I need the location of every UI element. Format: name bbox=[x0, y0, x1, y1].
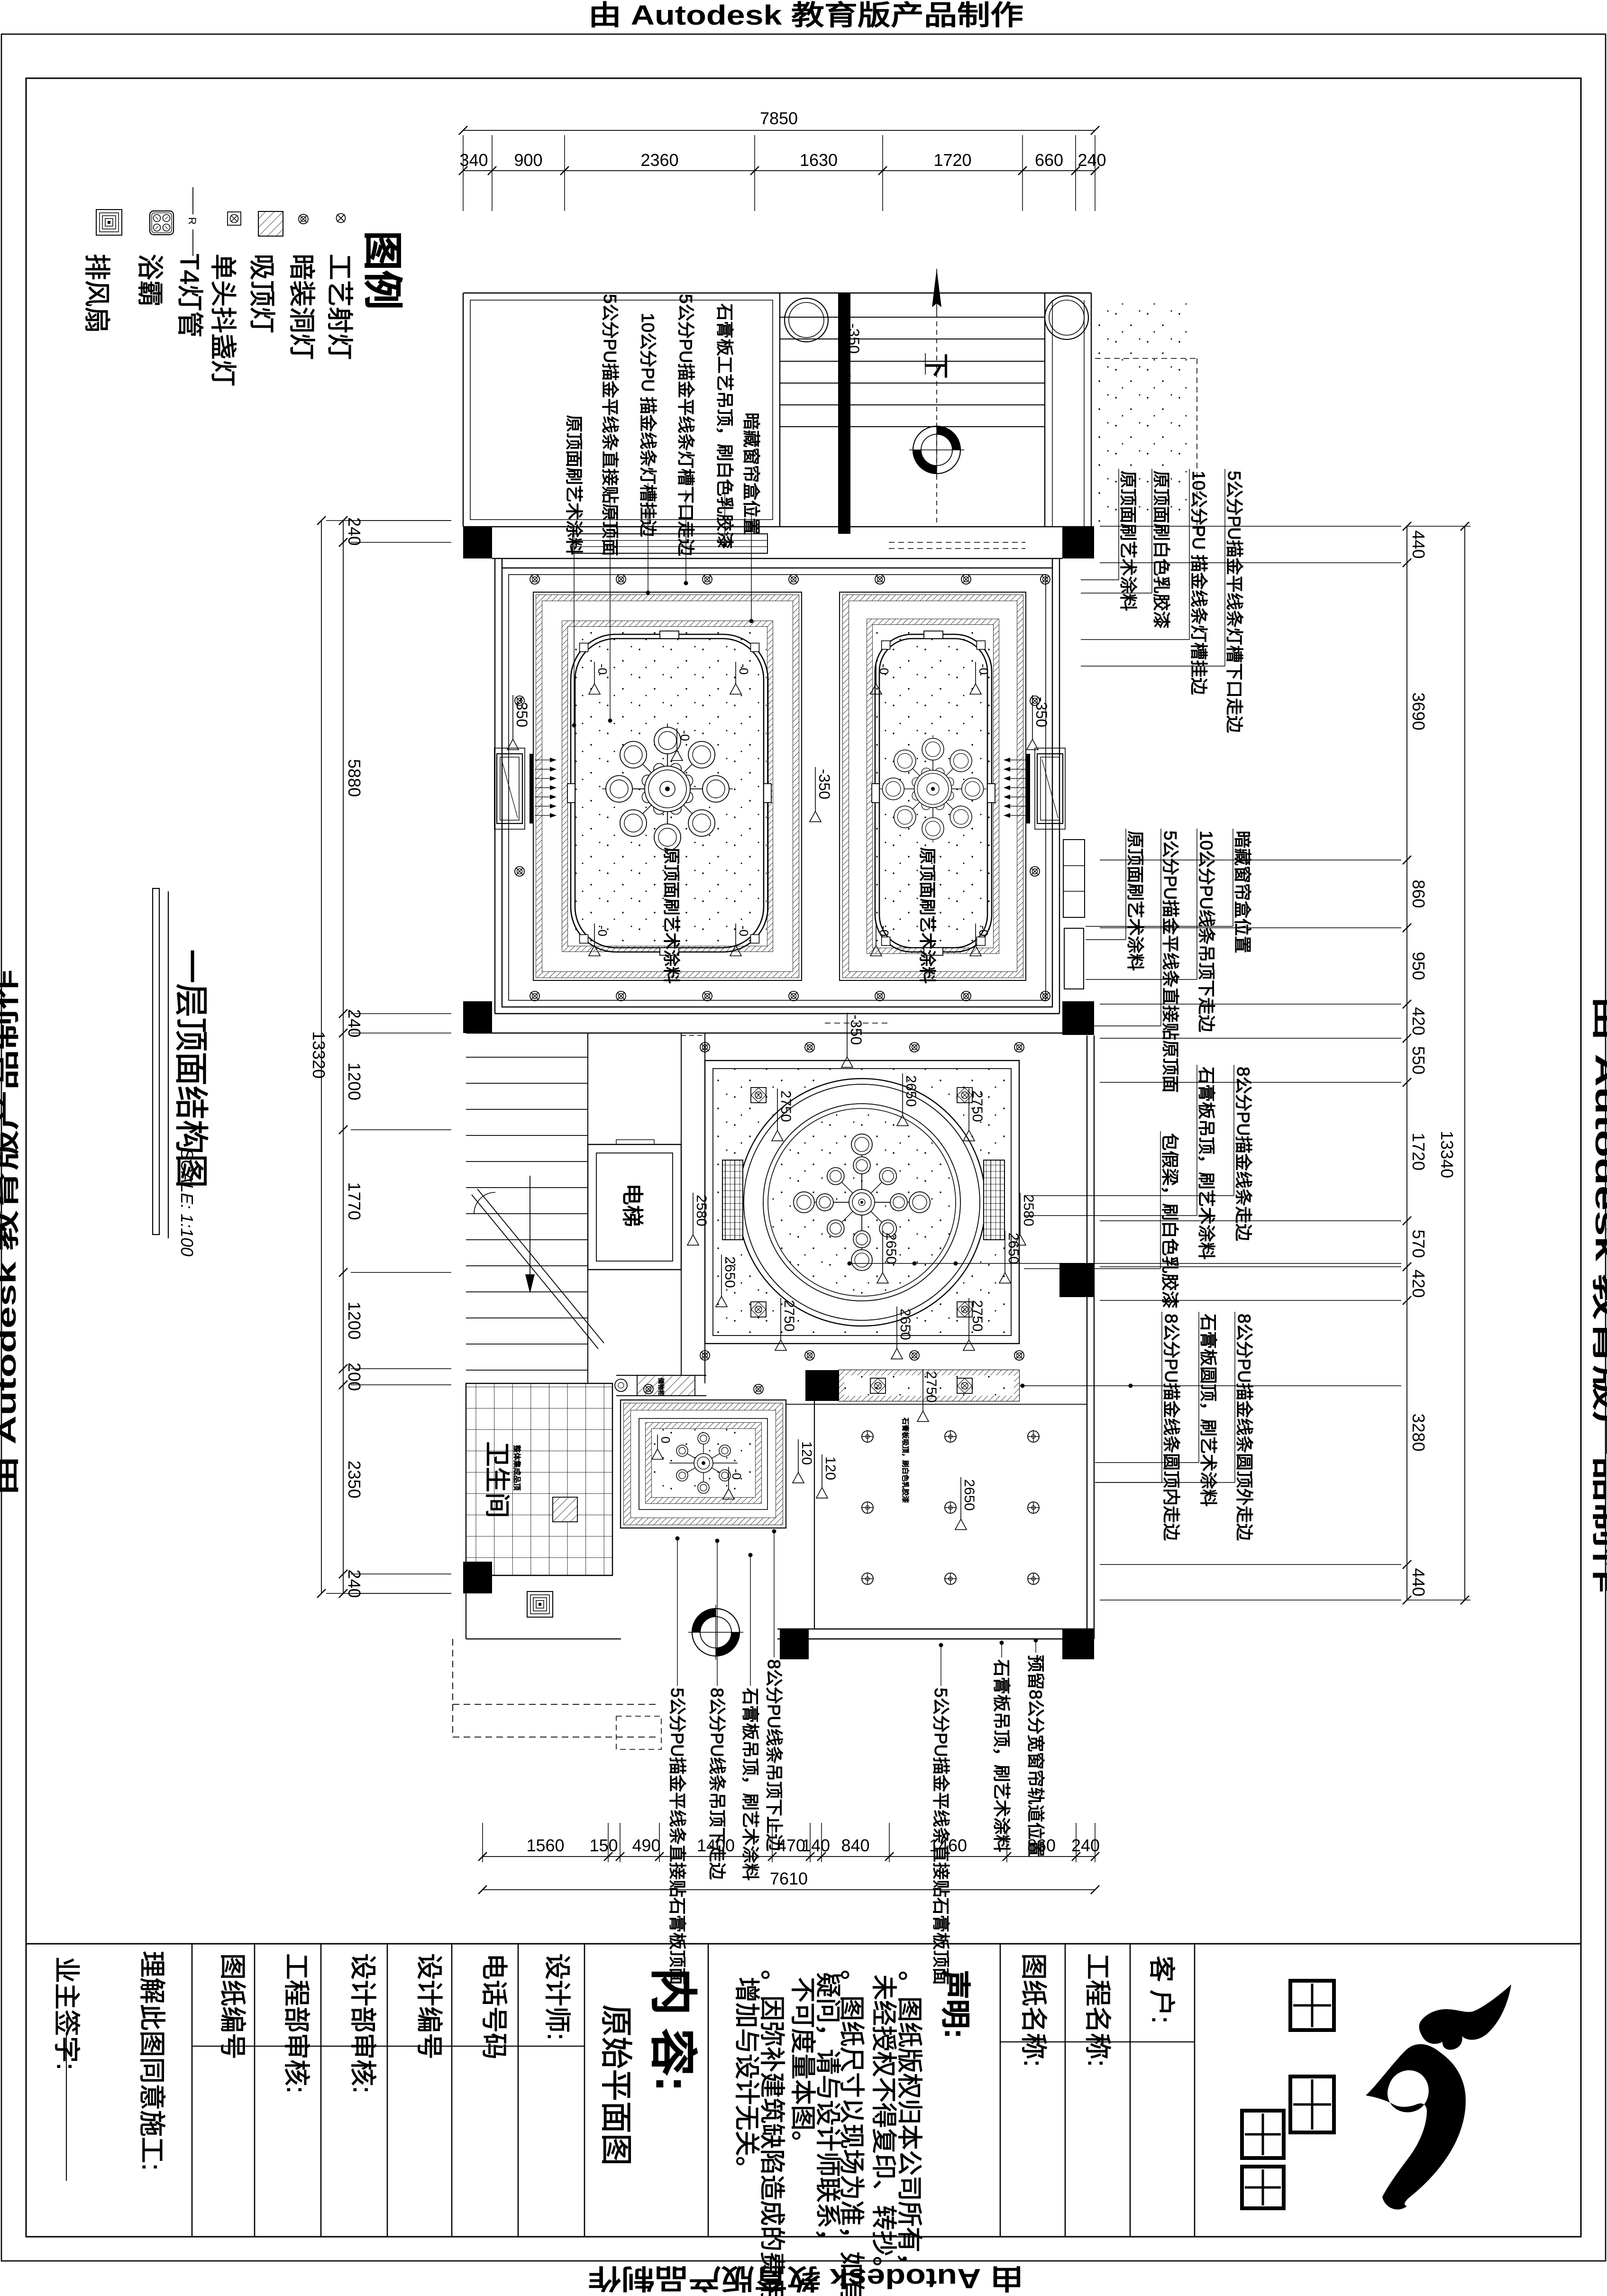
svg-text:T4灯管: T4灯管 bbox=[175, 254, 205, 338]
svg-text:150: 150 bbox=[589, 1836, 618, 1855]
svg-text:储物柜: 储物柜 bbox=[657, 1378, 665, 1396]
svg-text:5公分PU描金平线条直接贴石膏板顶面: 5公分PU描金平线条直接贴石膏板顶面 bbox=[667, 1688, 687, 1985]
svg-text:-0: -0 bbox=[737, 925, 751, 936]
svg-text:石膏板吊顶，刷艺术涂料: 石膏板吊顶，刷艺术涂料 bbox=[1196, 1067, 1216, 1260]
svg-text:原顶面刷艺术涂料: 原顶面刷艺术涂料 bbox=[662, 847, 681, 984]
svg-text:140: 140 bbox=[802, 1836, 830, 1855]
svg-text:-0: -0 bbox=[977, 664, 991, 675]
svg-text:由 Autodesk 教育版产品制作: 由 Autodesk 教育版产品制作 bbox=[588, 0, 1023, 31]
svg-text:工程部审核:: 工程部审核: bbox=[282, 1953, 311, 2094]
svg-text:2580: 2580 bbox=[694, 1195, 709, 1226]
svg-text:暗藏窗帘盒位置: 暗藏窗帘盒位置 bbox=[1233, 831, 1252, 953]
svg-text:2650: 2650 bbox=[903, 1075, 919, 1107]
svg-text:13320: 13320 bbox=[309, 1031, 329, 1079]
svg-text:7850: 7850 bbox=[760, 109, 798, 128]
svg-text:下: 下 bbox=[922, 353, 950, 379]
svg-text:0: 0 bbox=[658, 1436, 673, 1443]
svg-text:240: 240 bbox=[1077, 150, 1106, 170]
svg-text:660: 660 bbox=[1035, 150, 1063, 170]
svg-text:-0: -0 bbox=[877, 925, 891, 936]
svg-text:-0: -0 bbox=[678, 730, 692, 741]
svg-text:疑问，请与设计师联系，: 疑问，请与设计师联系， bbox=[813, 1972, 842, 2254]
svg-text:未经授权不得复印、转抄。: 未经授权不得复印、转抄。 bbox=[869, 1975, 898, 2282]
svg-text:吸顶灯: 吸顶灯 bbox=[247, 254, 277, 333]
svg-text:8公分PU描金线条圆顶内走边: 8公分PU描金线条圆顶内走边 bbox=[1161, 1314, 1181, 1541]
svg-text:图纸编号: 图纸编号 bbox=[218, 1953, 247, 2059]
svg-text:-350: -350 bbox=[845, 323, 862, 354]
svg-text:490: 490 bbox=[632, 1836, 660, 1855]
svg-text:SCALE: 1:100: SCALE: 1:100 bbox=[177, 1148, 197, 1256]
svg-text:240: 240 bbox=[345, 1009, 364, 1038]
svg-text:1720: 1720 bbox=[933, 150, 971, 170]
svg-text:-0: -0 bbox=[730, 1469, 744, 1480]
svg-text:-0: -0 bbox=[977, 925, 991, 936]
svg-text:2650: 2650 bbox=[961, 1479, 977, 1511]
svg-text:2650: 2650 bbox=[897, 1308, 913, 1340]
svg-text:业主签字:: 业主签字: bbox=[52, 1957, 82, 2070]
svg-text:设计部审核:: 设计部审核: bbox=[348, 1953, 378, 2094]
svg-text:950: 950 bbox=[1409, 952, 1428, 980]
svg-text:理解此图同意施工:: 理解此图同意施工: bbox=[137, 1951, 167, 2171]
svg-text:5880: 5880 bbox=[345, 759, 364, 797]
svg-text:-350: -350 bbox=[816, 769, 833, 799]
svg-text:工程名称:: 工程名称: bbox=[1083, 1953, 1113, 2067]
svg-text:1720: 1720 bbox=[1409, 1133, 1428, 1171]
svg-text:。图纸版权归本公司所有，: 。图纸版权归本公司所有， bbox=[895, 1971, 923, 2278]
svg-text:10公分PU线条吊顶下走边: 10公分PU线条吊顶下走边 bbox=[1196, 831, 1216, 1033]
svg-text:2750: 2750 bbox=[969, 1090, 985, 1122]
svg-text:原顶面刷艺术涂料: 原顶面刷艺术涂料 bbox=[918, 847, 937, 984]
svg-text:10公分PU 描金线条灯槽挂边: 10公分PU 描金线条灯槽挂边 bbox=[1189, 471, 1208, 695]
svg-text:440: 440 bbox=[1409, 1568, 1428, 1597]
svg-text:2750: 2750 bbox=[923, 1371, 939, 1403]
svg-text:预留8公分宽窗帘轨道位置: 预留8公分宽窗帘轨道位置 bbox=[1026, 1655, 1045, 1857]
svg-text:840: 840 bbox=[841, 1836, 869, 1855]
svg-text:200: 200 bbox=[345, 1363, 364, 1391]
svg-text:暗装洞灯: 暗装洞灯 bbox=[287, 254, 317, 360]
svg-text:420: 420 bbox=[1409, 1007, 1428, 1035]
svg-text:排风扇: 排风扇 bbox=[82, 254, 112, 333]
svg-text:石膏板吸顶，刷白色乳胶漆: 石膏板吸顶，刷白色乳胶漆 bbox=[901, 1418, 910, 1503]
svg-text:石膏板吊顶，刷艺术涂料: 石膏板吊顶，刷艺术涂料 bbox=[992, 1659, 1011, 1852]
svg-text:图纸名称:: 图纸名称: bbox=[1019, 1953, 1049, 2067]
svg-text:8公分PU线条吊顶下止边: 8公分PU线条吊顶下止边 bbox=[764, 1659, 784, 1851]
svg-text:-350: -350 bbox=[1033, 697, 1050, 727]
svg-text:R: R bbox=[186, 217, 198, 225]
svg-text:单头抖盏灯: 单头抖盏灯 bbox=[208, 254, 238, 386]
svg-text:2350: 2350 bbox=[345, 1461, 364, 1499]
svg-text:8公分PU描金线条走边: 8公分PU描金线条走边 bbox=[1233, 1067, 1253, 1241]
svg-text:图例: 图例 bbox=[360, 231, 404, 310]
svg-text:2750: 2750 bbox=[969, 1300, 985, 1332]
svg-text:1630: 1630 bbox=[800, 150, 838, 170]
svg-text:13340: 13340 bbox=[1437, 1131, 1457, 1178]
svg-text:420: 420 bbox=[1409, 1270, 1428, 1298]
svg-text:设计师:: 设计师: bbox=[542, 1953, 572, 2040]
svg-text:客 户:: 客 户: bbox=[1147, 1956, 1177, 2023]
svg-text:1770: 1770 bbox=[345, 1182, 364, 1220]
svg-text:1560: 1560 bbox=[526, 1836, 564, 1855]
svg-text:整体集成品顶: 整体集成品顶 bbox=[512, 1445, 521, 1491]
svg-text:240: 240 bbox=[345, 517, 364, 546]
svg-text:设计编号: 设计编号 bbox=[414, 1953, 444, 2059]
svg-text:-0: -0 bbox=[595, 925, 610, 936]
svg-text:2750: 2750 bbox=[778, 1090, 794, 1122]
svg-text:原始平面图: 原始平面图 bbox=[598, 2004, 634, 2166]
svg-text:5公分PU描金平线条灯槽下口走边: 5公分PU描金平线条灯槽下口走边 bbox=[1224, 471, 1244, 733]
svg-text:240: 240 bbox=[1071, 1836, 1100, 1855]
svg-text:8公分PU线条吊顶下走边: 8公分PU线条吊顶下走边 bbox=[707, 1688, 727, 1880]
svg-text:-0: -0 bbox=[877, 664, 891, 675]
svg-text:工艺射灯: 工艺射灯 bbox=[325, 254, 355, 360]
svg-text:-0: -0 bbox=[737, 664, 751, 675]
svg-text:7610: 7610 bbox=[770, 1869, 808, 1888]
svg-text:3690: 3690 bbox=[1409, 693, 1428, 731]
svg-text:电梯: 电梯 bbox=[620, 1183, 645, 1227]
svg-text:1200: 1200 bbox=[345, 1062, 364, 1100]
svg-text:由 Autodesk 教育版产品制作: 由 Autodesk 教育版产品制作 bbox=[1589, 996, 1607, 1593]
svg-text:860: 860 bbox=[1409, 880, 1428, 908]
svg-text:由 Autodesk 教育版产品制作: 由 Autodesk 教育版产品制作 bbox=[0, 970, 21, 1496]
svg-text:2650: 2650 bbox=[883, 1233, 899, 1264]
svg-text:-0: -0 bbox=[595, 664, 610, 675]
svg-text:-350: -350 bbox=[848, 1015, 865, 1045]
svg-text:-350: -350 bbox=[513, 697, 530, 727]
svg-text:增加与设计无关。: 增加与设计无关。 bbox=[732, 1977, 761, 2182]
svg-text:2580: 2580 bbox=[1021, 1195, 1036, 1226]
svg-text:原顶面刷白色乳胶漆: 原顶面刷白色乳胶漆 bbox=[1151, 471, 1171, 629]
svg-text:声明:: 声明: bbox=[939, 1970, 971, 2039]
svg-text:340: 340 bbox=[459, 150, 488, 170]
svg-text:原顶面刷艺术涂料: 原顶面刷艺术涂料 bbox=[1118, 471, 1138, 611]
svg-text:原顶面刷艺术涂料: 原顶面刷艺术涂料 bbox=[1125, 831, 1145, 971]
svg-text:550: 550 bbox=[1409, 1046, 1428, 1075]
svg-text:440: 440 bbox=[1409, 531, 1428, 559]
svg-text:。因弥补建筑缺陷造成的费用: 。因弥补建筑缺陷造成的费用 bbox=[758, 1970, 786, 2296]
svg-text:2750: 2750 bbox=[781, 1300, 797, 1332]
svg-text:石膏板圆顶，刷艺术涂料: 石膏板圆顶，刷艺术涂料 bbox=[1198, 1314, 1218, 1507]
svg-text:电话号码: 电话号码 bbox=[479, 1953, 509, 2059]
svg-text:浴霸: 浴霸 bbox=[135, 254, 165, 307]
svg-text:内 容:: 内 容: bbox=[646, 1968, 699, 2092]
svg-text:卫生间: 卫生间 bbox=[483, 1441, 511, 1518]
svg-text:石膏板吊顶，刷艺术涂料: 石膏板吊顶，刷艺术涂料 bbox=[740, 1688, 760, 1881]
svg-text:5公分PU描金平线条直接贴原顶面: 5公分PU描金平线条直接贴原顶面 bbox=[1160, 831, 1180, 1093]
svg-text:120: 120 bbox=[799, 1441, 814, 1465]
svg-text:900: 900 bbox=[514, 150, 542, 170]
svg-text:3280: 3280 bbox=[1409, 1414, 1428, 1452]
svg-text:120: 120 bbox=[822, 1456, 838, 1480]
svg-text:8公分PU描金线条圆顶外走边: 8公分PU描金线条圆顶外走边 bbox=[1234, 1314, 1254, 1541]
svg-text:不可度量本图。: 不可度量本图。 bbox=[788, 1977, 817, 2156]
svg-text:5公分PU描金平线条直接贴石膏板顶面: 5公分PU描金平线条直接贴石膏板顶面 bbox=[931, 1688, 950, 1985]
svg-text:570: 570 bbox=[1409, 1230, 1428, 1258]
svg-text:2360: 2360 bbox=[640, 150, 678, 170]
svg-text:由 Autodesk 教育版产品制作: 由 Autodesk 教育版产品制作 bbox=[588, 2263, 1023, 2294]
svg-text:2650: 2650 bbox=[722, 1256, 738, 1288]
svg-text:包假梁，刷白色乳胶漆: 包假梁，刷白色乳胶漆 bbox=[1160, 1133, 1179, 1308]
svg-text:1200: 1200 bbox=[345, 1302, 364, 1340]
